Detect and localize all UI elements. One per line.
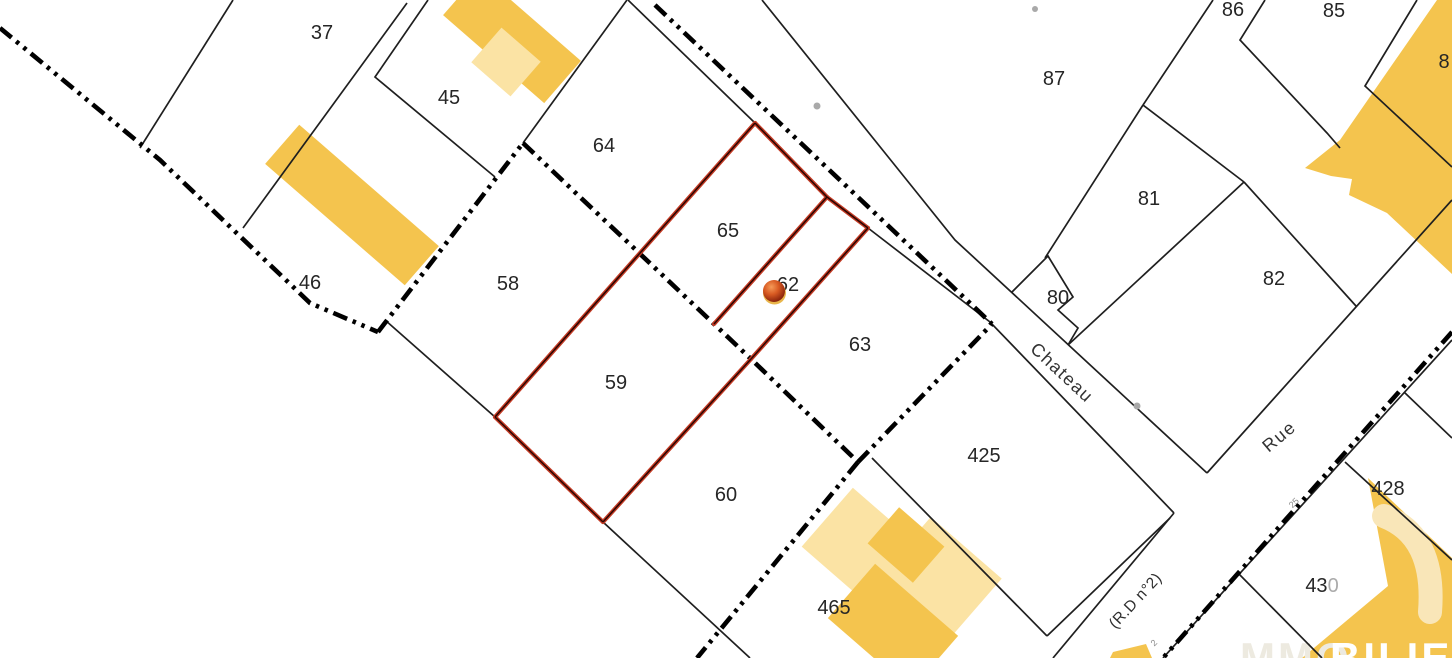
parcel-label-46: 46	[299, 272, 321, 294]
road-dot	[1032, 6, 1038, 12]
marker-ball	[763, 280, 785, 302]
parcel-label-430: 430	[1305, 575, 1338, 597]
road-dot	[1134, 403, 1141, 410]
parcel-label-428: 428	[1371, 478, 1404, 500]
parcel-label-86: 86	[1222, 0, 1244, 21]
parcel-label-425: 425	[967, 445, 1000, 467]
parcel-label-63: 63	[849, 334, 871, 356]
map-canvas[interactable]: MMO	[0, 0, 1452, 658]
road-dot	[814, 103, 821, 110]
parcel-label-8: 8	[1438, 51, 1449, 73]
parcel-label-58: 58	[497, 273, 519, 295]
parcel-label-81: 81	[1138, 188, 1160, 210]
parcel-label-85: 85	[1323, 0, 1345, 22]
parcel-label-87: 87	[1043, 68, 1065, 90]
parcel-label-64: 64	[593, 135, 615, 157]
parcel-label-82: 82	[1263, 268, 1285, 290]
parcel-label-65: 65	[717, 220, 739, 242]
parcel-label-59: 59	[605, 372, 627, 394]
map-background	[0, 0, 1452, 658]
parcel-label-465: 465	[817, 597, 850, 619]
parcel-label-60: 60	[715, 484, 737, 506]
parcel-label-37: 37	[311, 22, 333, 44]
parcel-label-80: 80	[1047, 287, 1069, 309]
parcel-label-45: 45	[438, 87, 460, 109]
watermark-main-text: BILIER	[1330, 634, 1452, 658]
